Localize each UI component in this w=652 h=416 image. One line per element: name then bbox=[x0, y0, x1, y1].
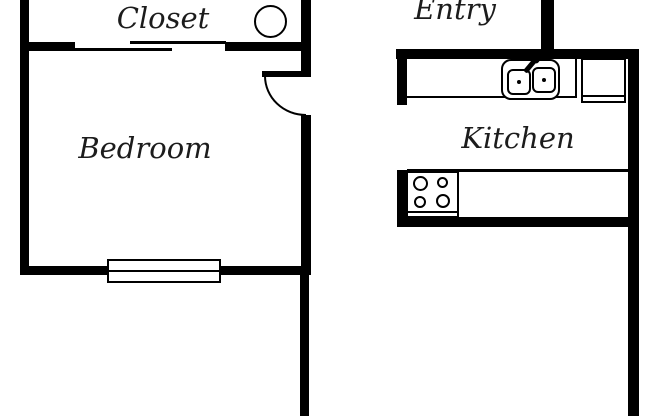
sink-drain-right-icon bbox=[542, 78, 546, 82]
stove-burner-top-left-icon bbox=[413, 176, 428, 191]
wall-right-lower-run bbox=[300, 275, 309, 416]
closet-sliding-door-lower-panel bbox=[75, 48, 172, 51]
sink-basin-right bbox=[532, 67, 556, 93]
stove-burner-bottom-right-icon bbox=[436, 194, 450, 208]
wall-bedroom-right bbox=[301, 115, 311, 275]
bedroom-window-center-line bbox=[109, 270, 219, 273]
closet-label: Closet bbox=[63, 1, 263, 35]
entry-label: Entry bbox=[355, 0, 555, 26]
refrigerator-front-line bbox=[583, 95, 624, 98]
stove bbox=[406, 171, 459, 218]
kitchen-label: Kitchen bbox=[418, 121, 618, 155]
floor-plan: Closet Entry Bedroom Kitchen bbox=[0, 0, 652, 416]
stove-front-line bbox=[408, 211, 457, 214]
closet-sliding-door-upper-panel bbox=[130, 41, 226, 44]
wall-kitchen-right-exterior bbox=[628, 49, 639, 416]
wall-closet-right-upper bbox=[301, 0, 311, 73]
wall-closet-bottom-left-segment bbox=[29, 42, 75, 51]
wall-left-exterior bbox=[20, 0, 29, 275]
wall-closet-bottom-right-segment bbox=[225, 42, 302, 51]
wall-kitchen-left-upper-stub bbox=[397, 49, 407, 105]
stove-burner-top-right-icon bbox=[437, 177, 448, 188]
refrigerator bbox=[581, 58, 626, 103]
bedroom-window bbox=[107, 259, 221, 283]
bedroom-label: Bedroom bbox=[45, 131, 245, 165]
wall-kitchen-bottom bbox=[397, 217, 637, 227]
stove-burner-bottom-left-icon bbox=[414, 196, 426, 208]
bedroom-door-swing-arc bbox=[264, 76, 306, 116]
sink-drain-left-icon bbox=[517, 80, 521, 84]
